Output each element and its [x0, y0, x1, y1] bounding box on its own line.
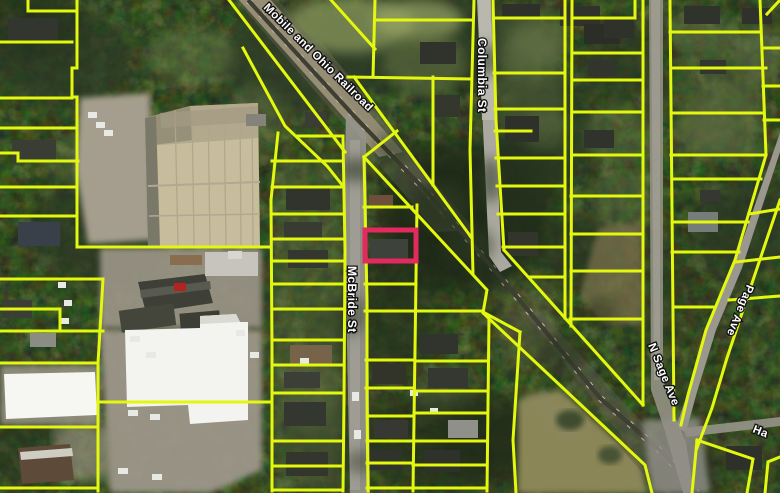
svg-text:Columbia St: Columbia St — [475, 38, 489, 112]
svg-text:McBride St: McBride St — [345, 266, 359, 333]
